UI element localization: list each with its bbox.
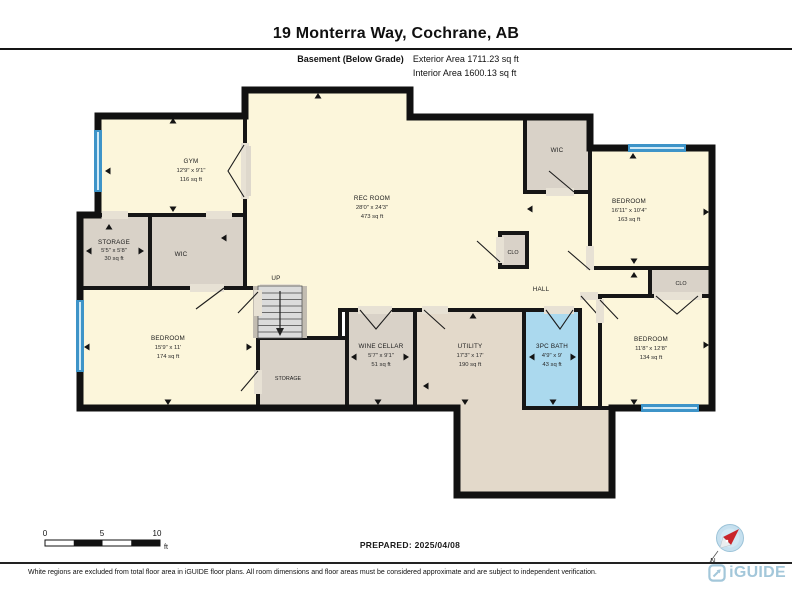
room-label-clo-hall: CLO [507, 250, 518, 256]
room-area-bedroom-left: 174 sq ft [157, 354, 180, 360]
door-opening [546, 188, 574, 196]
room-area-rec: 473 sq ft [361, 214, 384, 220]
room-label-rec: REC ROOM [354, 195, 390, 202]
disclaimer-text: White regions are excluded from total fl… [28, 569, 628, 576]
door-opening [254, 290, 262, 316]
room-dims-bedroom-rl: 11'8" x 12'8" [635, 346, 667, 352]
room-bedroom-right-lower [600, 296, 712, 408]
room-dims-utility: 17'3" x 17' [457, 353, 484, 359]
door-opening [206, 211, 232, 219]
room-dims-bedroom-ru: 16'11" x 10'4" [611, 208, 646, 214]
door-opening [422, 306, 448, 314]
door-panel [246, 146, 251, 196]
prepared-date: PREPARED: 2025/04/08 [14, 540, 792, 550]
window-pane [79, 302, 81, 370]
room-label-bath: 3PC BATH [536, 343, 568, 350]
window-pane [630, 147, 684, 149]
room-label-gym: GYM [184, 158, 199, 165]
scale-tick-0: 0 [43, 529, 48, 538]
door-opening [190, 284, 224, 292]
room-area-bedroom-ru: 163 sq ft [618, 217, 641, 223]
door-opening [358, 306, 392, 314]
room-gym [98, 116, 245, 215]
room-label-bedroom-rl: BEDROOM [634, 336, 668, 343]
room-dims-wine-cellar: 5'7" x 9'1" [368, 353, 394, 359]
room-dims-bedroom-left: 15'9" x 11' [155, 345, 182, 351]
footer-divider [0, 562, 792, 564]
room-label-wic-right: WIC [551, 147, 564, 154]
floor-plan-drawing: GYM 12'9" x 9'1" 116 sq ft REC ROOM 28'0… [0, 0, 792, 612]
room-area-bath: 43 sq ft [542, 362, 562, 368]
room-label-utility: UTILITY [458, 343, 483, 350]
room-area-storage-left: 30 sq ft [104, 256, 124, 262]
door-opening [580, 292, 598, 300]
room-label-storage-stairs: STORAGE [275, 376, 302, 382]
room-bedroom-right-upper [590, 148, 712, 268]
room-area-bedroom-rl: 134 sq ft [640, 355, 663, 361]
room-label-clo-right: CLO [675, 281, 686, 287]
room-label-hall: HALL [533, 286, 550, 293]
room-area-utility: 190 sq ft [459, 362, 482, 368]
stairs-rail-right [302, 286, 307, 338]
room-label-storage-left: STORAGE [98, 239, 130, 246]
brand-name: iGUIDE [729, 564, 786, 582]
room-storage-under-stairs [258, 338, 347, 408]
room-label-bedroom-ru: BEDROOM [612, 198, 646, 205]
room-label-wine-cellar: WINE CELLAR [359, 343, 404, 350]
room-area-gym: 116 sq ft [180, 177, 203, 183]
scale-tick-10: 10 [153, 529, 162, 538]
floor-plan-page: 19 Monterra Way, Cochrane, AB Basement (… [0, 0, 792, 612]
stairs-up-label: UP [271, 275, 280, 282]
room-area-wine-cellar: 51 sq ft [371, 362, 391, 368]
door-opening [586, 246, 594, 270]
room-label-wic-left: WIC [175, 251, 188, 258]
iguide-logo-icon [708, 564, 726, 582]
room-dims-gym: 12'9" x 9'1" [176, 168, 205, 174]
window-pane [97, 132, 99, 190]
window-pane [643, 407, 697, 409]
room-dims-storage-left: 5'5" x 5'8" [101, 248, 127, 254]
room-dims-bath: 4'9" x 9' [542, 353, 562, 359]
room-label-bedroom-left: BEDROOM [151, 335, 185, 342]
room-dims-rec: 28'0" x 24'3" [356, 205, 388, 211]
iguide-logo: iGUIDE [708, 564, 786, 582]
room-wic-left [150, 215, 245, 288]
room-wic-right [525, 117, 590, 192]
scale-tick-5: 5 [100, 529, 105, 538]
door-opening [102, 211, 128, 219]
